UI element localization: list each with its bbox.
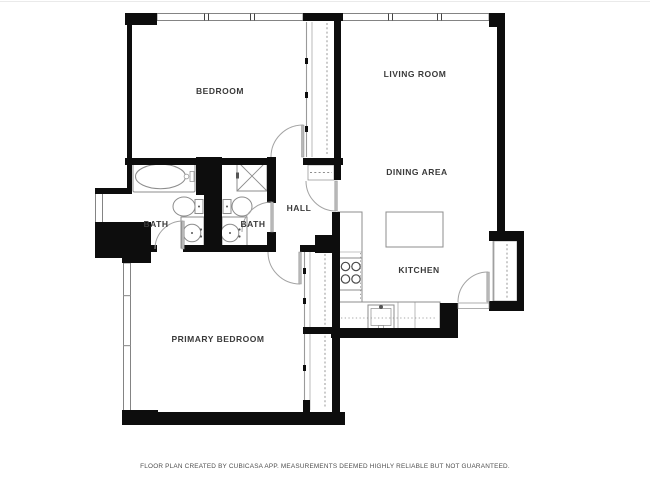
room-label-kitchen: KITCHEN: [398, 265, 439, 275]
shower-icon: [236, 161, 267, 191]
room-label-bath-left: BATH: [144, 219, 169, 229]
wall-segment: [331, 328, 441, 338]
wall-segment: [127, 13, 132, 193]
toilet-left-icon: [173, 197, 203, 216]
wall-segment: [517, 231, 524, 311]
stove-icon: [338, 258, 362, 290]
wall-segment: [303, 13, 343, 21]
wall-segment: [267, 232, 276, 252]
wall-segment: [334, 20, 341, 180]
room-label-primary-bedroom: PRIMARY BEDROOM: [172, 334, 265, 344]
door-entry: [458, 272, 489, 309]
wall-segment: [196, 157, 222, 195]
door-primary-bedroom: [268, 252, 301, 284]
disclaimer-text: FLOOR PLAN CREATED BY CUBICASA APP. MEAS…: [140, 463, 510, 470]
floor-plan: BEDROOM LIVING ROOM DINING AREA HALL BAT…: [0, 0, 650, 487]
room-label-dining-area: DINING AREA: [386, 167, 447, 177]
wall-segment: [497, 13, 505, 231]
wall-segment: [183, 245, 268, 252]
wall-segment: [489, 301, 524, 311]
room-label-bedroom: BEDROOM: [196, 86, 244, 96]
wall-segment: [267, 157, 276, 203]
wall-segment: [300, 245, 315, 252]
kitchen-island: [386, 212, 443, 247]
toilet-right-icon: [223, 197, 252, 216]
closet-entry: [493, 241, 517, 301]
floor-plan-page: BEDROOM LIVING ROOM DINING AREA HALL BAT…: [0, 0, 650, 487]
bathtub-icon: [133, 161, 195, 192]
wall-segment: [303, 400, 310, 413]
wall-segment: [204, 192, 222, 252]
window-primary-bedroom: [124, 263, 131, 412]
room-label-living-room: LIVING ROOM: [384, 69, 447, 79]
kitchen-sink-icon: [368, 305, 394, 329]
room-label-bath-right: BATH: [241, 219, 266, 229]
closet-bedroom-living: [305, 22, 327, 157]
door-bedroom: [271, 125, 304, 157]
wall-segment: [332, 212, 340, 415]
room-label-hall: HALL: [287, 203, 312, 213]
window-bedroom-top: [157, 14, 303, 21]
closet-hall: [308, 165, 334, 180]
window-living-top: [341, 14, 489, 21]
wall-segment: [122, 412, 345, 425]
wall-segment: [95, 245, 157, 252]
window-bath-left: [96, 192, 103, 223]
wall-segment: [440, 303, 458, 338]
wall-segment: [95, 188, 132, 194]
